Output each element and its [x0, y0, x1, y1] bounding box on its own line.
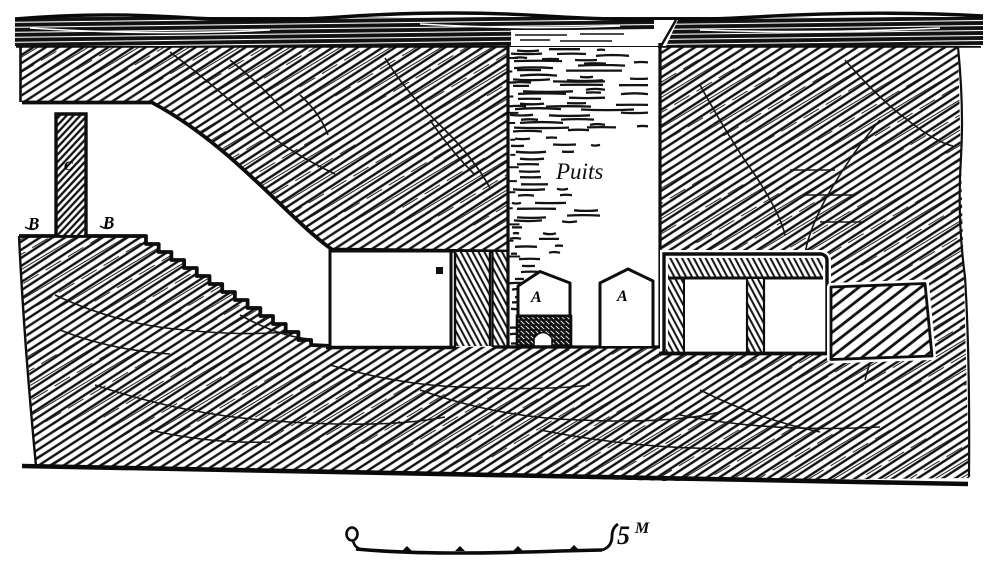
svg-text:M: M	[634, 520, 650, 537]
svg-text:A: A	[616, 288, 628, 305]
svg-text:C: C	[64, 158, 73, 173]
svg-text:B: B	[27, 214, 39, 233]
svg-text:A: A	[530, 289, 542, 306]
svg-text:Puits: Puits	[555, 159, 603, 184]
svg-text:B: B	[102, 213, 114, 232]
svg-text:5: 5	[617, 521, 630, 550]
